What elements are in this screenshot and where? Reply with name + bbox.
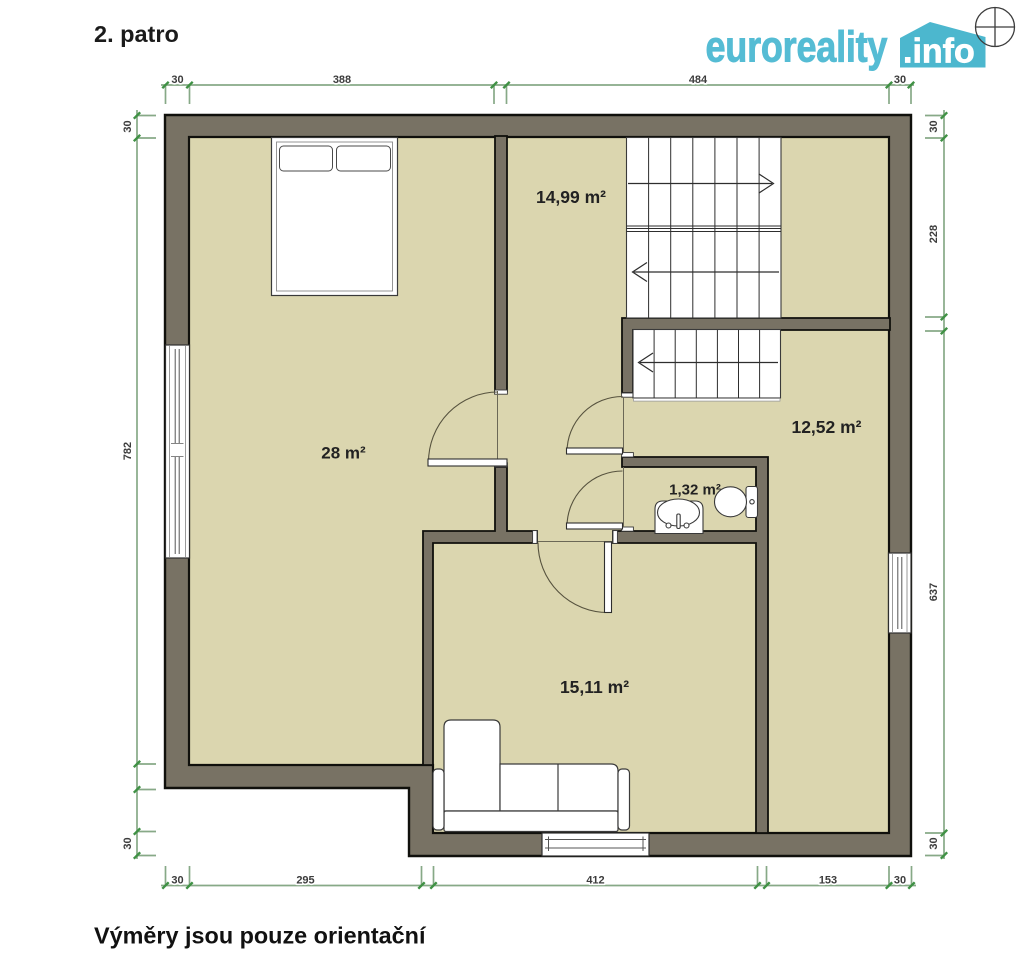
svg-text:30: 30	[894, 74, 906, 86]
svg-text:12,52 m²: 12,52 m²	[791, 417, 861, 437]
svg-text:30: 30	[122, 120, 134, 132]
svg-text:30: 30	[171, 875, 183, 887]
svg-text:14,99 m²: 14,99 m²	[536, 187, 606, 207]
svg-text:30: 30	[122, 837, 134, 849]
svg-text:30: 30	[171, 74, 183, 86]
svg-text:782: 782	[122, 442, 134, 460]
svg-text:228: 228	[928, 225, 940, 243]
svg-text:.info: .info	[903, 33, 975, 71]
svg-text:637: 637	[928, 583, 940, 601]
svg-text:484: 484	[689, 74, 708, 86]
svg-text:Výměry jsou pouze orientační: Výměry jsou pouze orientační	[94, 923, 427, 949]
svg-text:28 m²: 28 m²	[321, 444, 366, 463]
svg-text:euroreality: euroreality	[706, 22, 889, 71]
svg-text:1,32 m²: 1,32 m²	[669, 482, 721, 499]
svg-text:15,11 m²: 15,11 m²	[560, 677, 629, 697]
svg-text:388: 388	[333, 74, 351, 86]
svg-text:30: 30	[928, 837, 940, 849]
svg-text:30: 30	[894, 875, 906, 887]
svg-text:295: 295	[296, 875, 314, 887]
svg-text:153: 153	[819, 875, 837, 887]
svg-text:2. patro: 2. patro	[94, 21, 179, 47]
svg-text:30: 30	[928, 120, 940, 132]
svg-text:412: 412	[586, 875, 604, 887]
